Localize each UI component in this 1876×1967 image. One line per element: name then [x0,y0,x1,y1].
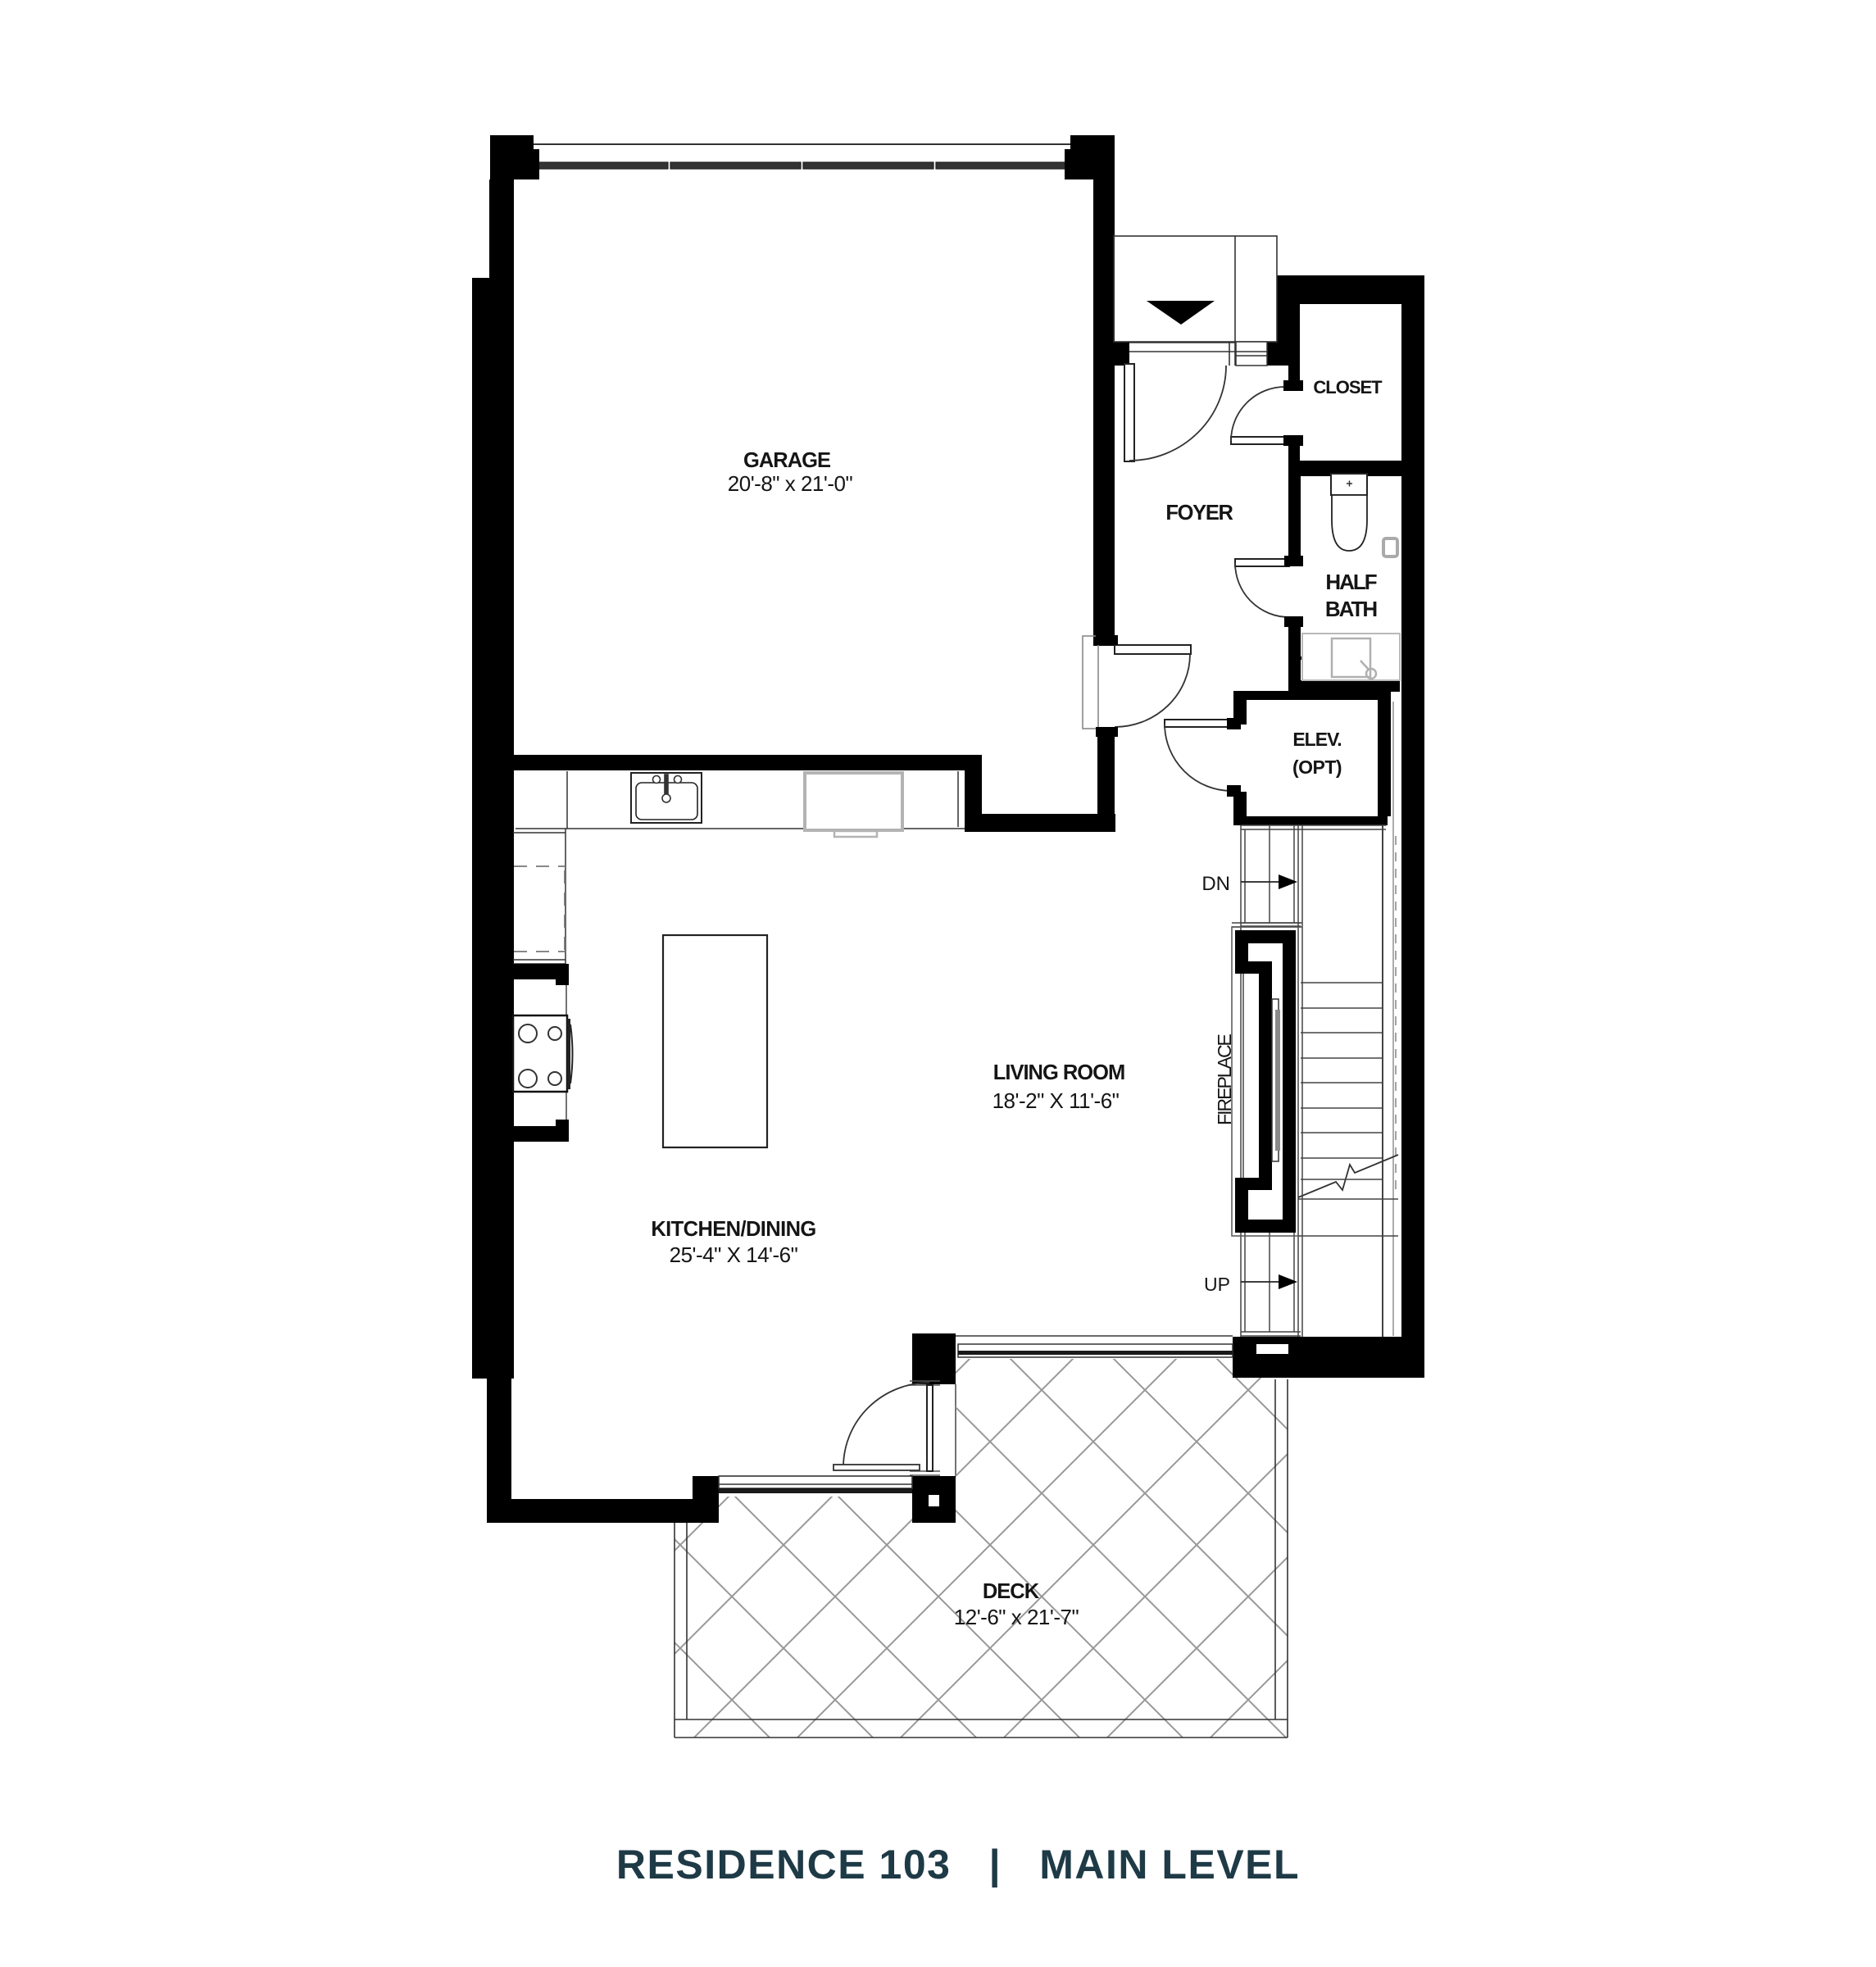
svg-text:FOYER: FOYER [1165,502,1233,525]
svg-text:DECK: DECK [983,1580,1040,1603]
svg-text:FIREPLACE: FIREPLACE [1214,1033,1235,1124]
svg-text:UP: UP [1204,1274,1230,1295]
svg-text:HALF: HALF [1325,570,1376,594]
svg-text:12'-6" x 21'-7": 12'-6" x 21'-7" [954,1605,1079,1629]
svg-text:BATH: BATH [1325,597,1378,621]
svg-text:LIVING ROOM: LIVING ROOM [993,1061,1124,1084]
svg-text:18'-2" X 11'-6": 18'-2" X 11'-6" [993,1088,1120,1113]
svg-text:20'-8" x 21'-0": 20'-8" x 21'-0" [728,471,853,496]
svg-text:GARAGE: GARAGE [743,449,831,472]
svg-text:RESIDENCE 103 | MAIN LEVEL: RESIDENCE 103 | MAIN LEVEL [616,1842,1300,1888]
svg-text:DN: DN [1201,873,1230,895]
svg-text:25'-4" X 14'-6": 25'-4" X 14'-6" [670,1242,798,1267]
svg-text:ELEV.: ELEV. [1292,729,1341,750]
svg-text:KITCHEN/DINING: KITCHEN/DINING [651,1218,815,1241]
svg-text:(OPT): (OPT) [1292,756,1342,778]
svg-text:CLOSET: CLOSET [1313,377,1383,397]
